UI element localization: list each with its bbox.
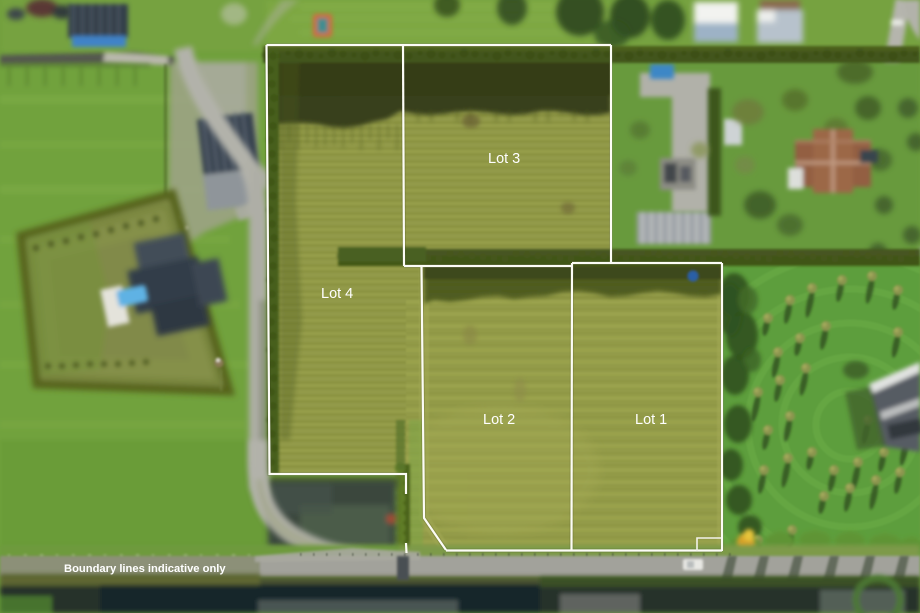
svg-text:Lot 4: Lot 4 [321,286,353,302]
svg-text:Lot 1: Lot 1 [635,412,667,428]
svg-text:Boundary lines indicative only: Boundary lines indicative only [64,563,226,575]
svg-text:Lot 2: Lot 2 [483,412,515,428]
svg-text:Lot 3: Lot 3 [488,151,520,167]
